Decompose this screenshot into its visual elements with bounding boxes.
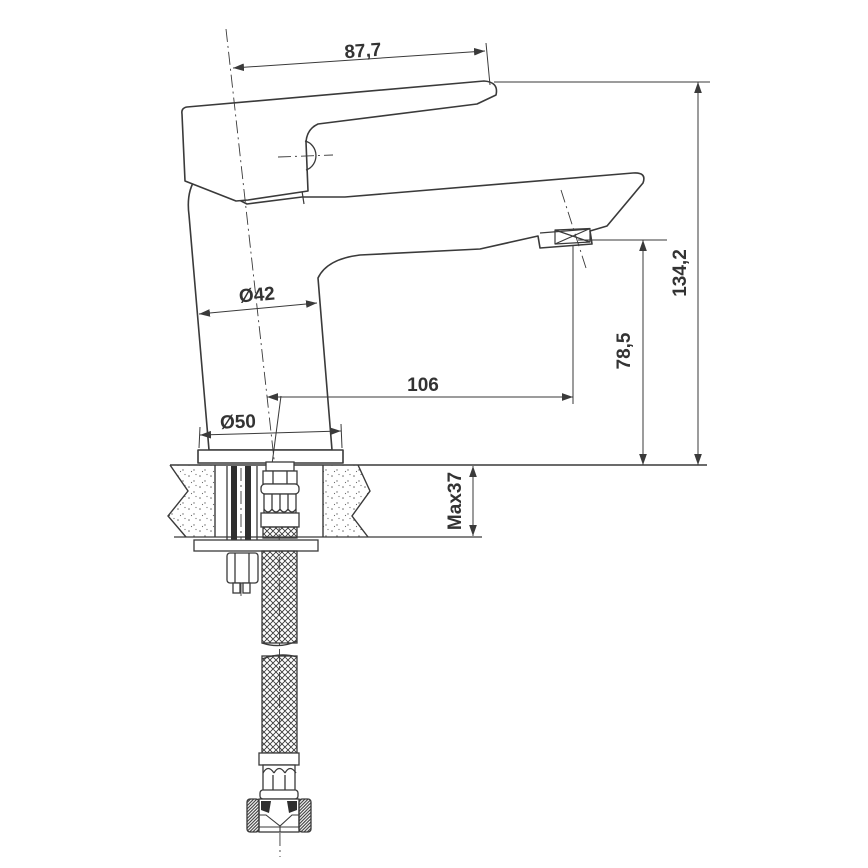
nut-knurl-right: [299, 799, 311, 832]
hose-ferrule: [259, 753, 299, 765]
threaded-stud-bar: [231, 466, 237, 540]
dim-label-spout-reach: 106: [407, 375, 439, 396]
fitting-hex: [263, 471, 297, 484]
dim-lever-length: 87,7: [233, 40, 490, 85]
hose-flare-ring: [260, 790, 298, 799]
dim-label-deck-thickness: Max37: [445, 472, 466, 530]
lever-outline: [182, 81, 497, 201]
dim-label-base-diameter: Ø50: [220, 411, 257, 433]
dim-deck-thickness: Max37: [445, 466, 473, 536]
mounting-washer-plate: [194, 540, 318, 551]
stud-end-stub: [233, 583, 240, 593]
extension-line: [486, 43, 490, 85]
dim-label-total-height: 134,2: [670, 249, 691, 297]
mounting-hex-nut: [227, 553, 258, 583]
fitting-cap: [266, 462, 294, 471]
flexible-hose: [259, 551, 299, 799]
base-flange: [198, 450, 343, 463]
dim-label-lever-length: 87,7: [344, 40, 382, 64]
drawing-canvas: 87,7 134,2 78,5 106 Ø42 Ø50: [0, 0, 868, 868]
extension-line: [341, 424, 342, 448]
threaded-stud-bar: [245, 466, 251, 540]
faucet-body-spout: [188, 173, 644, 463]
dim-outlet-height: 78,5: [578, 240, 667, 465]
dim-label-outlet-height: 78,5: [614, 332, 635, 369]
hose-end-nut: [247, 799, 311, 832]
nut-knurl-left: [247, 799, 259, 832]
faucet-lever: [182, 81, 497, 201]
fitting-braid-start: [263, 527, 297, 538]
dim-label-body-diameter: Ø42: [238, 283, 276, 307]
hose-braid-lower: [262, 656, 297, 753]
dim-total-height: 134,2: [494, 82, 710, 465]
technical-drawing: 87,7 134,2 78,5 106 Ø42 Ø50: [0, 0, 868, 868]
stud-end-stub: [243, 583, 250, 593]
fitting-block: [261, 513, 299, 527]
countertop-left-block: [168, 465, 215, 537]
body-spout-outline: [188, 173, 644, 450]
extension-line: [199, 427, 200, 448]
fitting-collar: [261, 484, 299, 494]
hose-braid-upper: [262, 551, 297, 643]
